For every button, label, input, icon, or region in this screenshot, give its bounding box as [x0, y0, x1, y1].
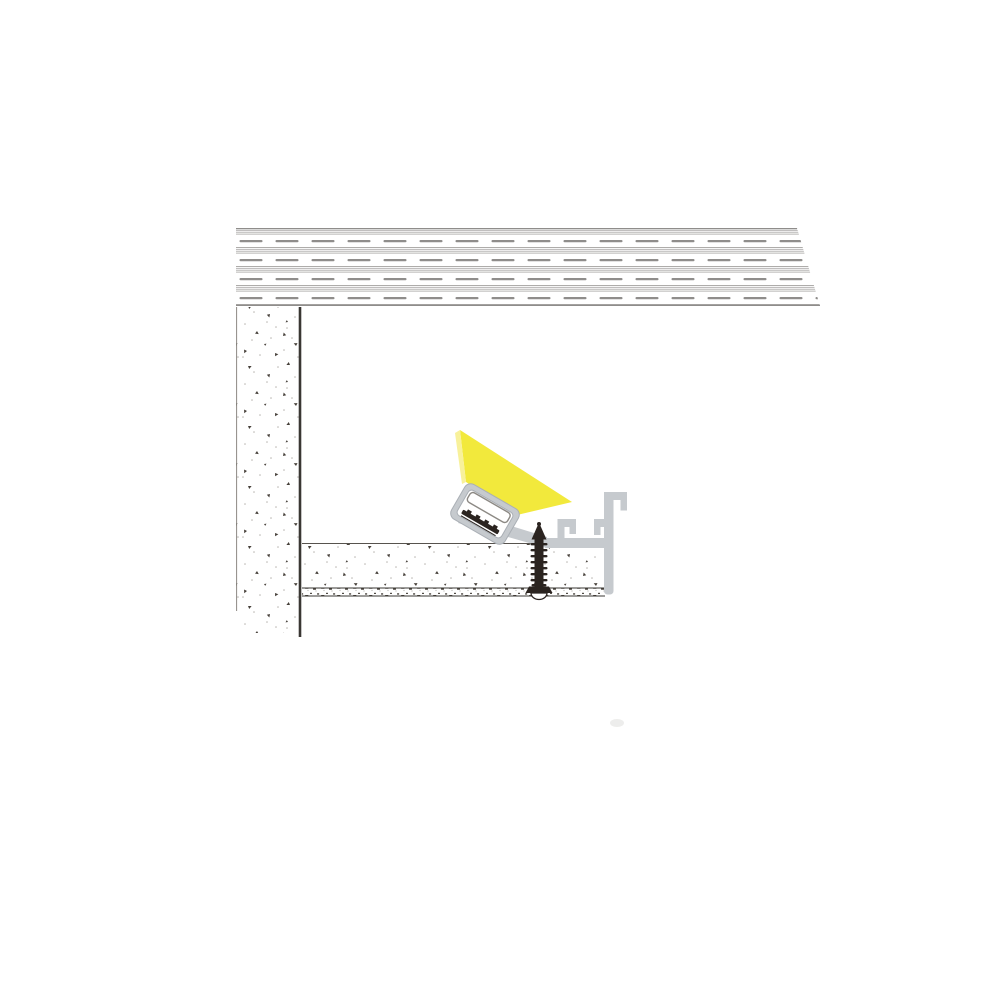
plaster-skim-texture: [302, 588, 605, 596]
profile-hook-left-arm: [558, 519, 577, 527]
profile-hook-left-tab: [570, 527, 577, 534]
drywall-board-texture: [302, 543, 606, 588]
drywall-board: [302, 543, 606, 588]
masonry-wall-texture: [236, 307, 300, 633]
print-smudge: [610, 719, 624, 727]
profile-hook-right-arm: [594, 519, 605, 527]
screw-head-dome: [531, 593, 547, 600]
plaster-skim-layer: [302, 588, 605, 596]
masonry-wall: [236, 307, 300, 637]
profile-vertical-wall: [604, 492, 614, 595]
illustration-canvas: led-profile-drywall-cross-section: [0, 0, 1000, 1000]
screw-tip-point: [537, 522, 541, 526]
ceiling-slab-hatch: [236, 228, 820, 306]
profile-top-cap-tab: [621, 500, 628, 511]
ceiling-slab: [236, 228, 820, 306]
screw-head: [526, 587, 553, 594]
profile-hook-right-tab: [594, 527, 601, 535]
profile-flange: [545, 538, 608, 548]
cross-section-diagram: led-profile-drywall-cross-section: [0, 0, 1000, 1000]
profile-top-cap: [604, 492, 627, 500]
